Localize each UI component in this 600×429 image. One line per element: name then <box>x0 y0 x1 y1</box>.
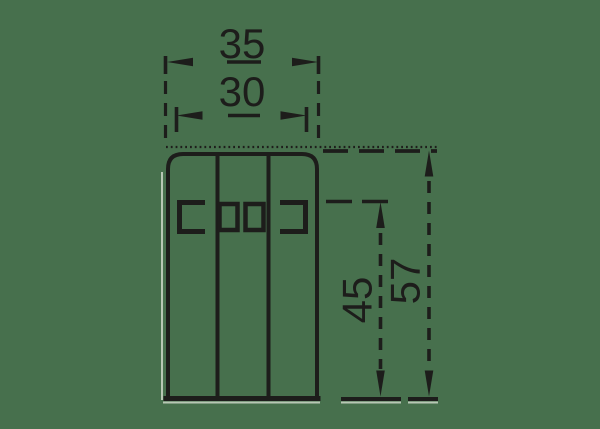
dimension-30-label: 30 <box>219 68 266 115</box>
dimension-57-label: 57 <box>382 258 429 305</box>
dimension-45-label: 45 <box>334 277 381 324</box>
drawing-canvas: 35 30 45 57 <box>0 0 600 429</box>
dimension-35-label: 35 <box>219 20 266 67</box>
dimension-drawing: 35 30 45 57 <box>0 0 600 429</box>
